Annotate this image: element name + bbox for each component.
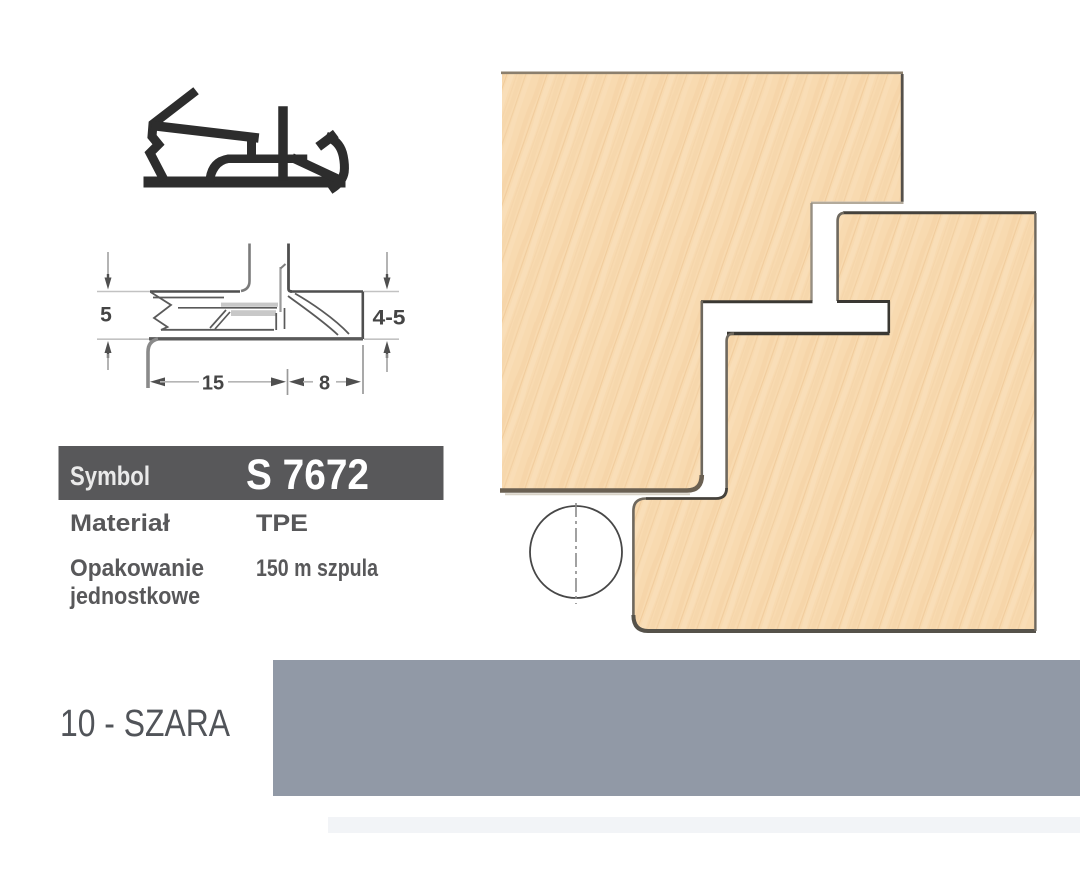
svg-text:8: 8: [319, 373, 330, 395]
svg-text:150 m szpula: 150 m szpula: [256, 555, 379, 582]
svg-text:S 7672: S 7672: [246, 451, 369, 499]
svg-text:Opakowanie: Opakowanie: [70, 555, 204, 582]
svg-text:10 - SZARA: 10 - SZARA: [60, 703, 231, 745]
svg-text:TPE: TPE: [256, 510, 308, 537]
svg-text:Symbol: Symbol: [70, 461, 150, 491]
svg-text:15: 15: [202, 373, 224, 395]
svg-text:5: 5: [100, 304, 112, 327]
svg-text:4-5: 4-5: [373, 307, 406, 330]
svg-text:Materiał: Materiał: [70, 510, 170, 537]
svg-text:jednostkowe: jednostkowe: [69, 583, 200, 610]
